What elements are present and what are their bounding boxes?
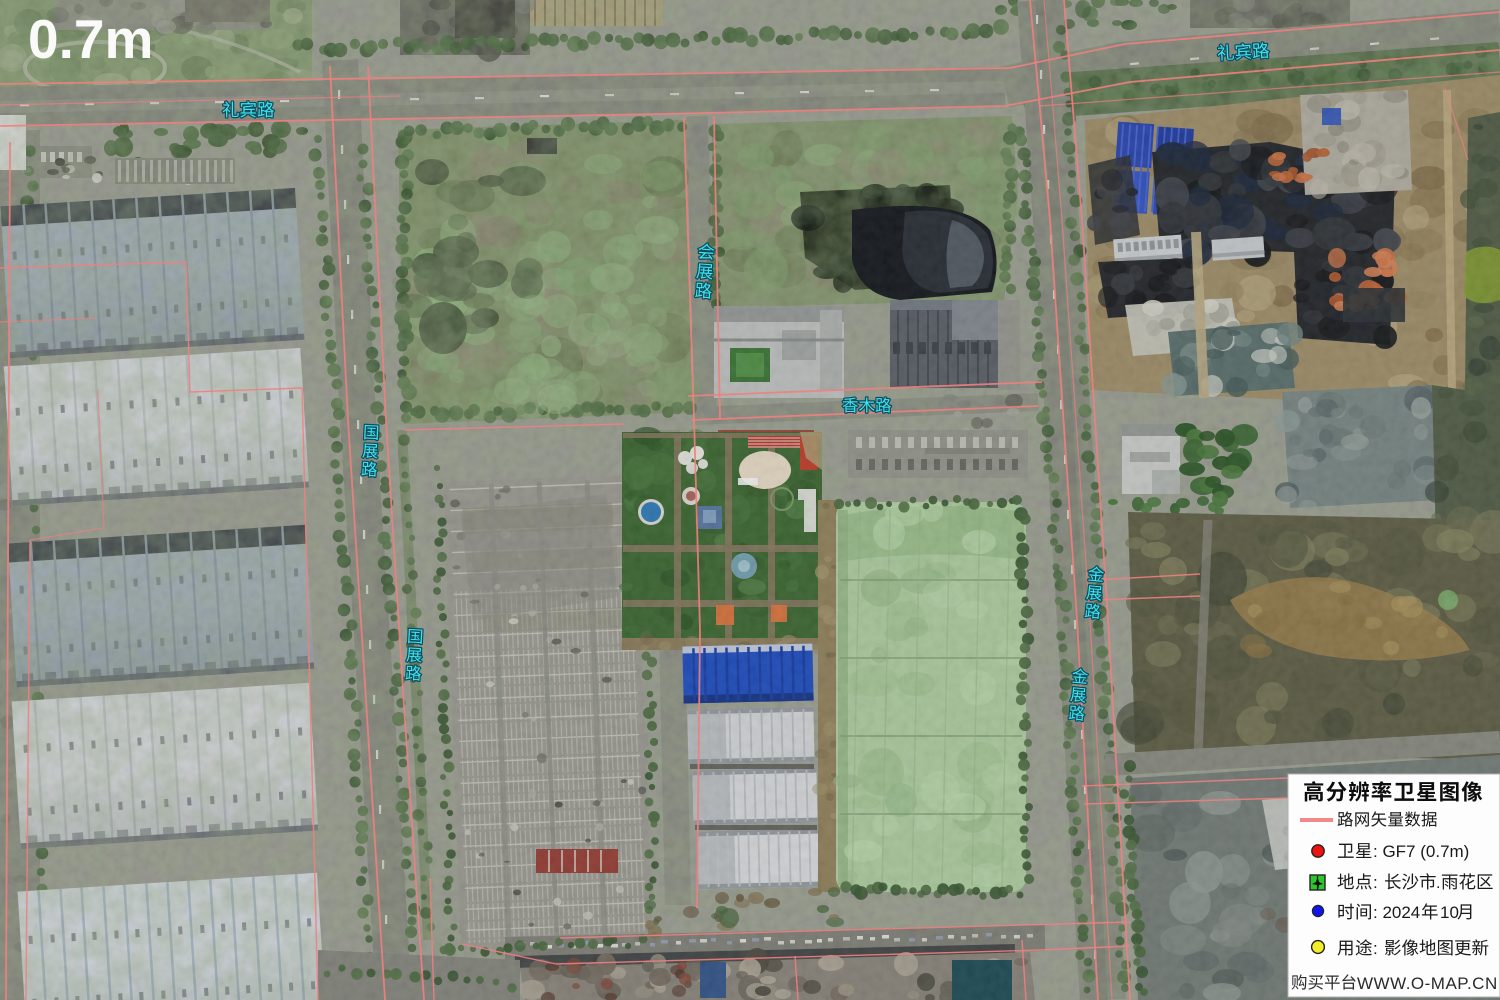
- svg-text:.: .: [1436, 875, 1440, 892]
- svg-text::: :: [1373, 939, 1378, 958]
- svg-text:0.7m: 0.7m: [28, 8, 153, 70]
- svg-text:: 2024: : 2024: [1373, 903, 1420, 922]
- svg-text:WWW.O-MAP.CN: WWW.O-MAP.CN: [1357, 974, 1498, 993]
- svg-text:: GF7 (0.7m): : GF7 (0.7m): [1373, 842, 1469, 861]
- svg-text:10: 10: [1440, 903, 1459, 922]
- svg-text::: :: [1373, 873, 1378, 892]
